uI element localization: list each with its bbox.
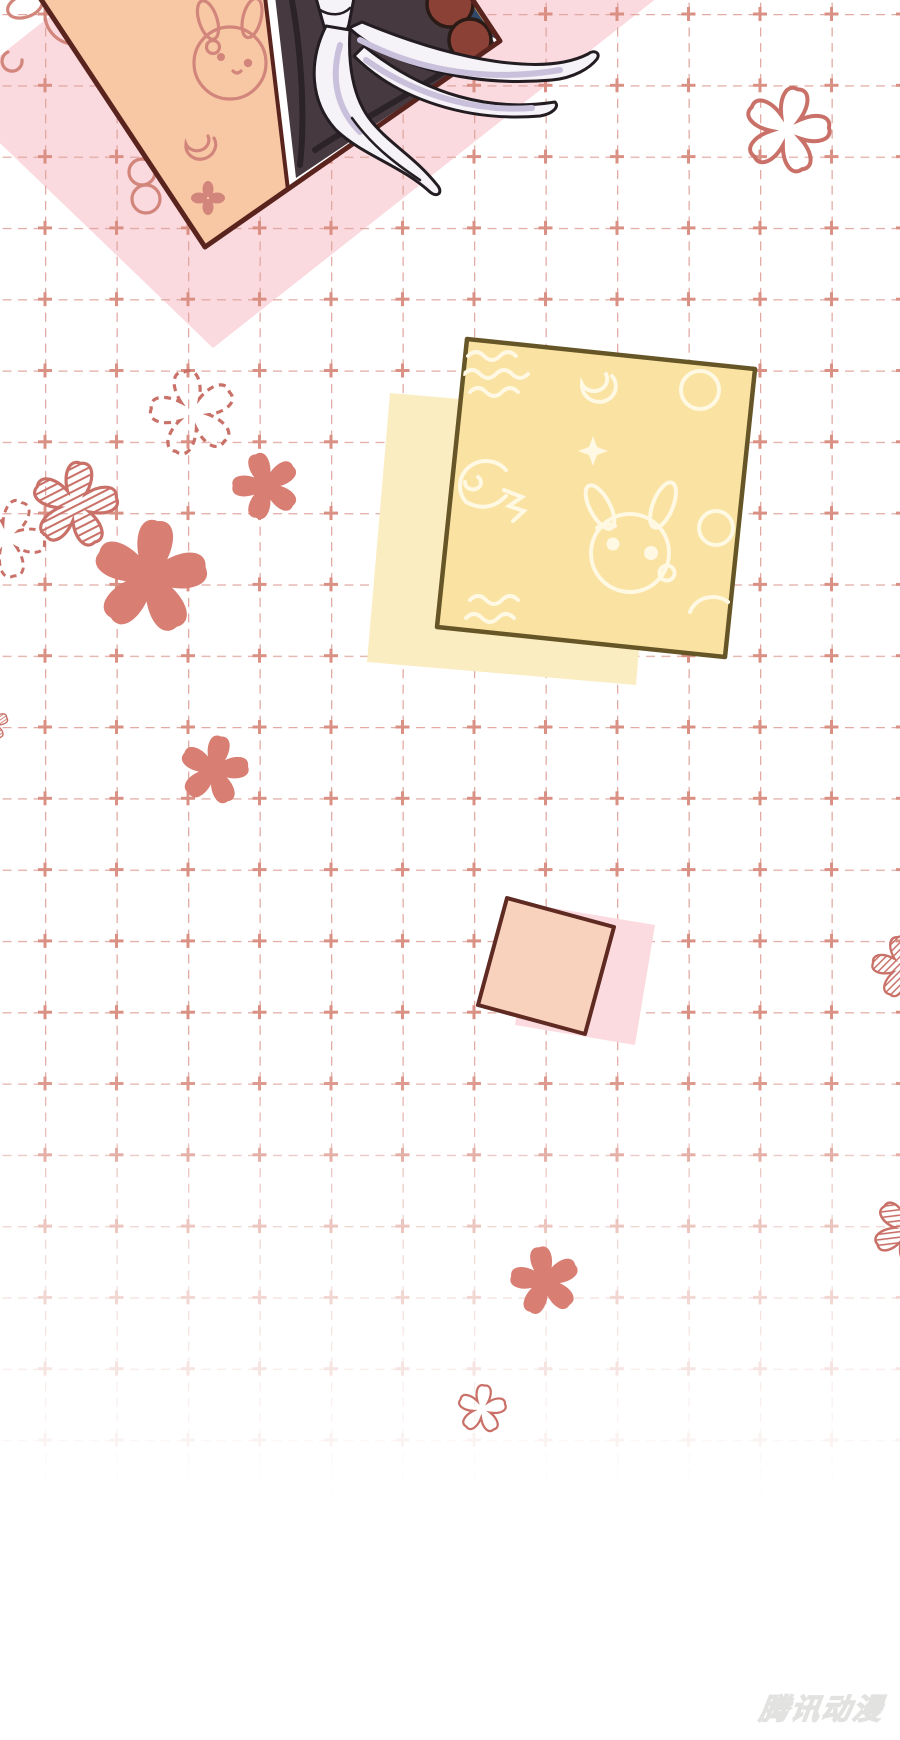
bunny-doodle-eye xyxy=(644,546,658,560)
clover-doodle-petal xyxy=(209,193,225,204)
comic-page: 腾讯动漫 xyxy=(0,0,900,1740)
clover-doodle-petal xyxy=(191,193,207,204)
grid-fade-overlay xyxy=(0,1050,900,1740)
bunny-doodle-eye xyxy=(244,59,252,67)
page-artwork xyxy=(0,0,900,1740)
yellow-note-front xyxy=(437,339,755,657)
bunny-doodle-eye xyxy=(217,53,225,61)
bunny-doodle-eye xyxy=(607,538,620,551)
watermark: 腾讯动漫 xyxy=(757,1686,887,1728)
